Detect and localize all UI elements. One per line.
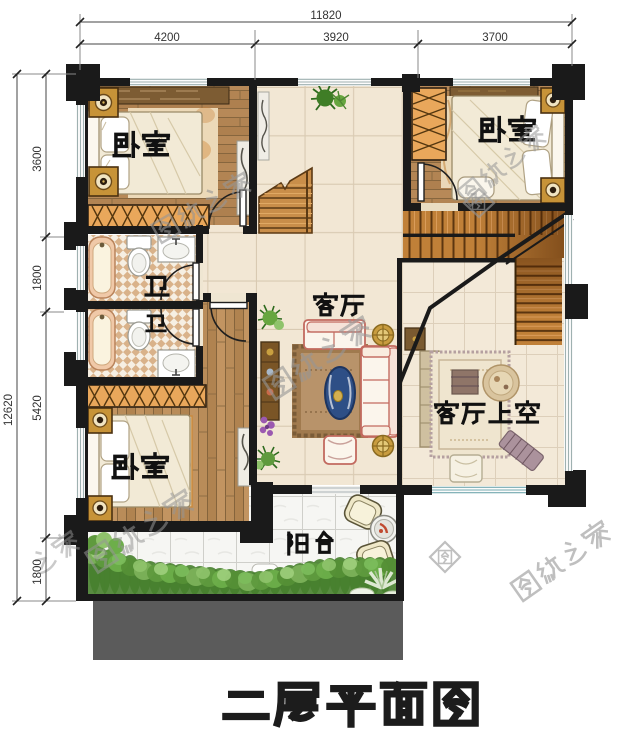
svg-text:4200: 4200	[154, 32, 180, 44]
svg-text:3600: 3600	[32, 146, 44, 172]
svg-text:3920: 3920	[323, 32, 349, 44]
svg-text:1800: 1800	[32, 265, 44, 291]
svg-text:3700: 3700	[482, 32, 508, 44]
svg-text:1800: 1800	[32, 559, 44, 585]
svg-text:5420: 5420	[32, 395, 44, 421]
svg-text:12620: 12620	[3, 394, 15, 426]
svg-text:11820: 11820	[310, 10, 341, 22]
